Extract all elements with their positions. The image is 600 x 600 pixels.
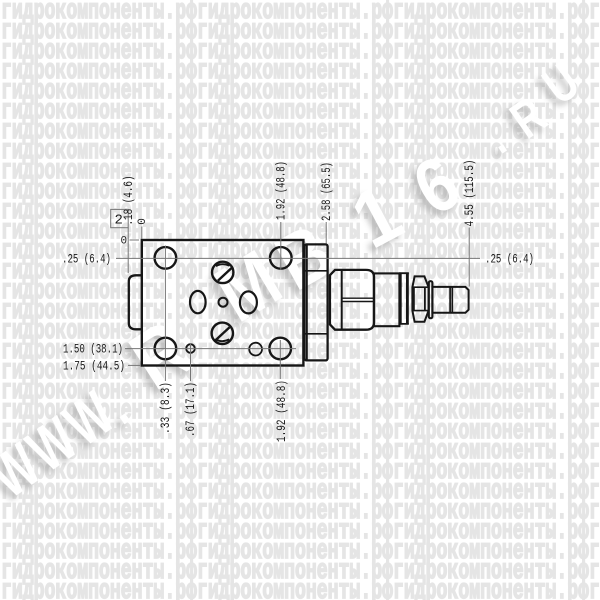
svg-text:.67 (17.1): .67 (17.1) — [183, 382, 198, 437]
svg-text:1.50 (38.1): 1.50 (38.1) — [63, 342, 123, 357]
svg-text:1.92 (48.8): 1.92 (48.8) — [274, 380, 289, 442]
svg-text:1.92 (48.8): 1.92 (48.8) — [274, 161, 289, 220]
svg-text:.25 (6.4): .25 (6.4) — [62, 252, 111, 267]
svg-text:.33 (8.3): .33 (8.3) — [158, 382, 173, 434]
svg-text:0: 0 — [137, 218, 149, 225]
svg-text:0: 0 — [121, 236, 128, 248]
svg-text:.25 (6.4): .25 (6.4) — [485, 252, 534, 267]
svg-text:2.58 (65.5): 2.58 (65.5) — [319, 162, 334, 221]
svg-text:.18 (4.6): .18 (4.6) — [121, 176, 136, 226]
svg-text:1.75 (44.5): 1.75 (44.5) — [63, 358, 125, 373]
svg-text:4.55 (115.5): 4.55 (115.5) — [462, 160, 477, 227]
svg-text:гидрокомпоненты.рфгидрокомпоне: гидрокомпоненты.рфгидрокомпоненты.рфгидр… — [1, 576, 600, 600]
